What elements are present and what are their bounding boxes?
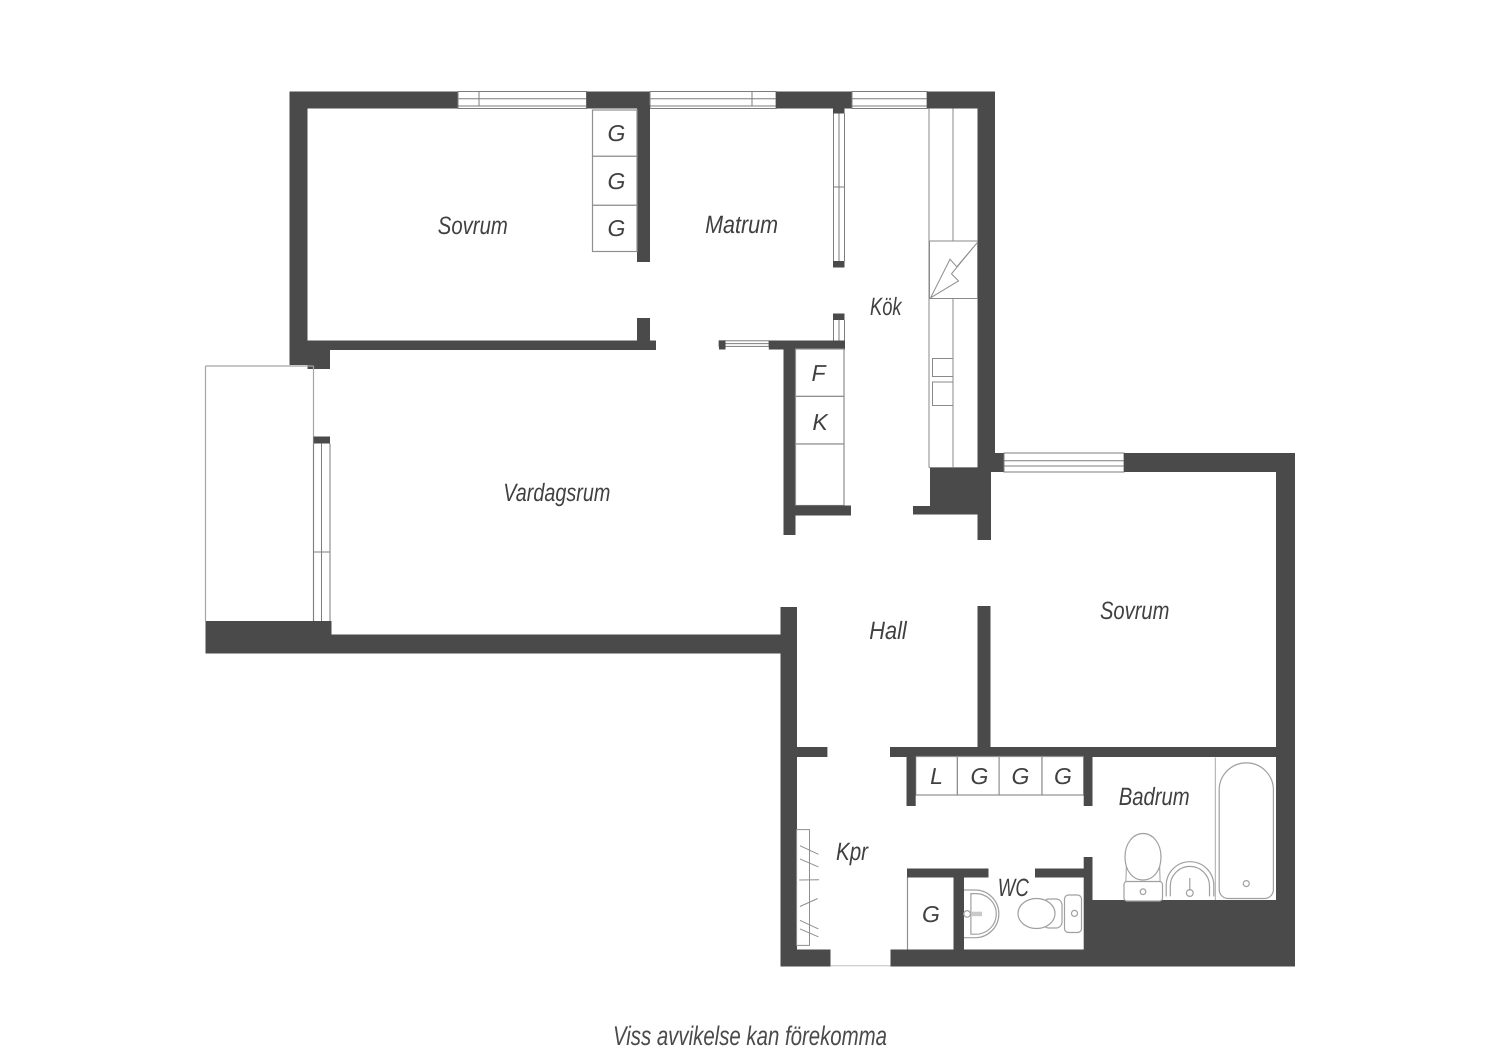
svg-text:L: L bbox=[930, 763, 943, 789]
svg-text:Sovrum: Sovrum bbox=[438, 212, 508, 240]
svg-text:Sovrum: Sovrum bbox=[1100, 597, 1170, 625]
svg-text:Viss avvikelse kan förekomma: Viss avvikelse kan förekomma bbox=[613, 1021, 887, 1051]
svg-text:Vardagsrum: Vardagsrum bbox=[503, 479, 610, 507]
svg-text:Hall: Hall bbox=[869, 617, 908, 645]
svg-text:Badrum: Badrum bbox=[1119, 783, 1190, 811]
svg-text:K: K bbox=[812, 409, 829, 435]
svg-text:G: G bbox=[1054, 763, 1072, 789]
svg-text:Kök: Kök bbox=[870, 293, 903, 321]
svg-text:G: G bbox=[608, 215, 626, 241]
svg-text:G: G bbox=[922, 901, 940, 927]
svg-text:G: G bbox=[1012, 763, 1030, 789]
svg-text:G: G bbox=[971, 763, 989, 789]
svg-text:Matrum: Matrum bbox=[705, 211, 778, 239]
svg-text:G: G bbox=[608, 168, 626, 194]
svg-text:WC: WC bbox=[998, 874, 1030, 902]
svg-text:G: G bbox=[608, 120, 626, 146]
svg-text:F: F bbox=[811, 360, 827, 386]
svg-text:Kpr: Kpr bbox=[836, 838, 869, 866]
